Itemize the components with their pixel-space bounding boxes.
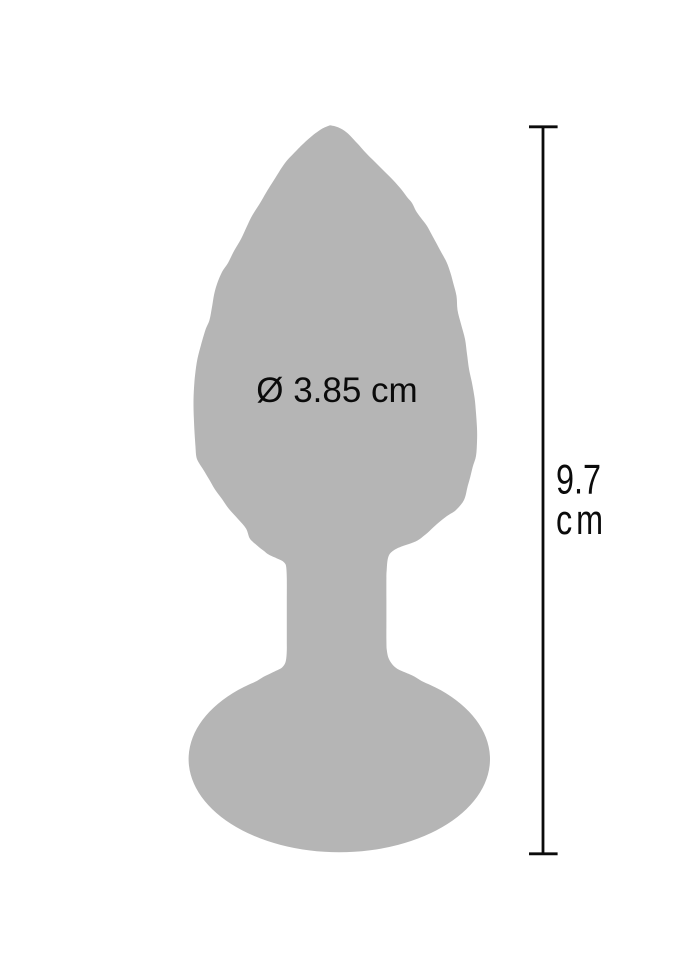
- svg-text:cm: cm: [556, 496, 607, 543]
- svg-text:Ø 3.85 cm: Ø 3.85 cm: [256, 371, 417, 410]
